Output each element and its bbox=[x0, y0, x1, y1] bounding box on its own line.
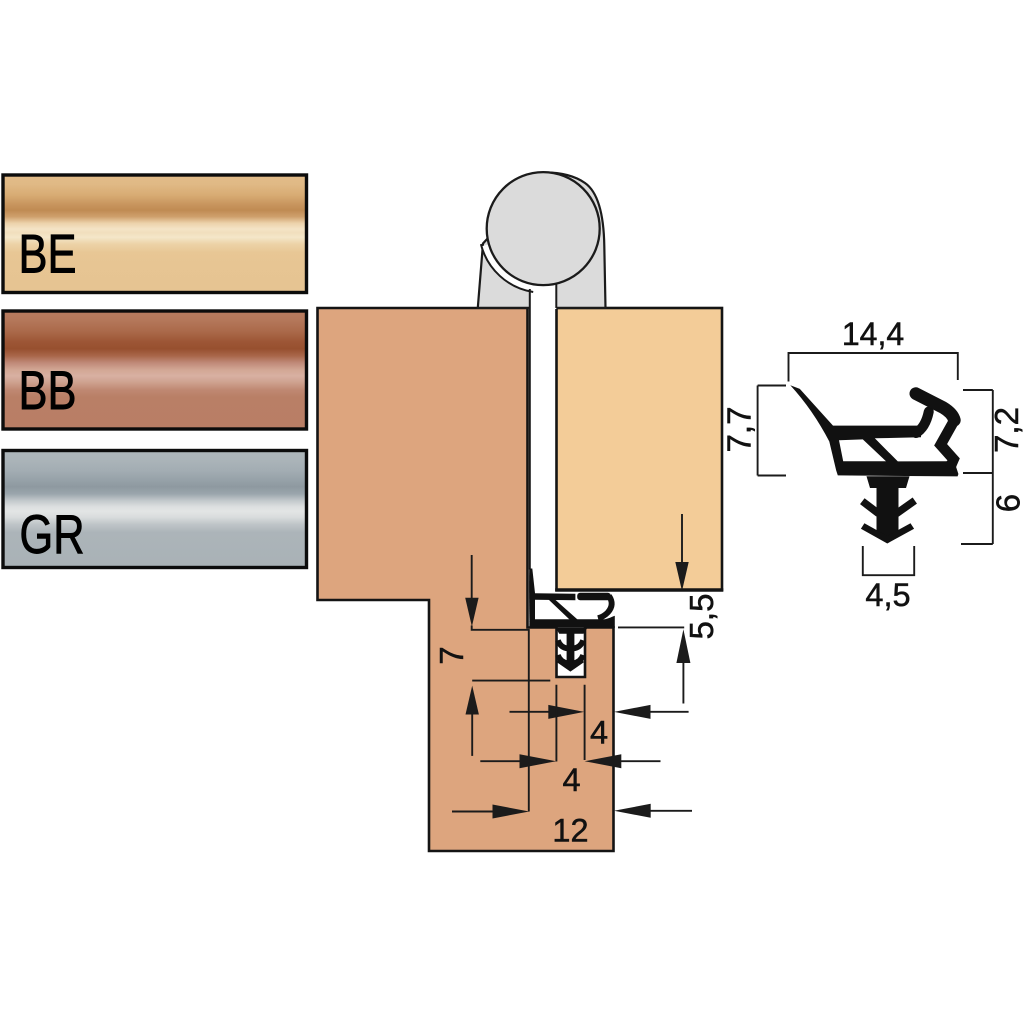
svg-text:4: 4 bbox=[590, 715, 608, 751]
svg-text:12: 12 bbox=[552, 813, 588, 849]
svg-text:6: 6 bbox=[990, 494, 1024, 512]
svg-text:7,2: 7,2 bbox=[988, 407, 1024, 453]
svg-text:BE: BE bbox=[19, 223, 77, 285]
svg-text:4,5: 4,5 bbox=[865, 577, 910, 613]
svg-text:GR: GR bbox=[20, 503, 85, 565]
svg-text:7: 7 bbox=[433, 646, 470, 664]
svg-text:7,7: 7,7 bbox=[721, 407, 758, 453]
svg-text:14,4: 14,4 bbox=[842, 316, 904, 352]
svg-text:BB: BB bbox=[19, 359, 77, 421]
svg-text:4: 4 bbox=[562, 762, 580, 798]
svg-text:5,5: 5,5 bbox=[683, 594, 720, 640]
